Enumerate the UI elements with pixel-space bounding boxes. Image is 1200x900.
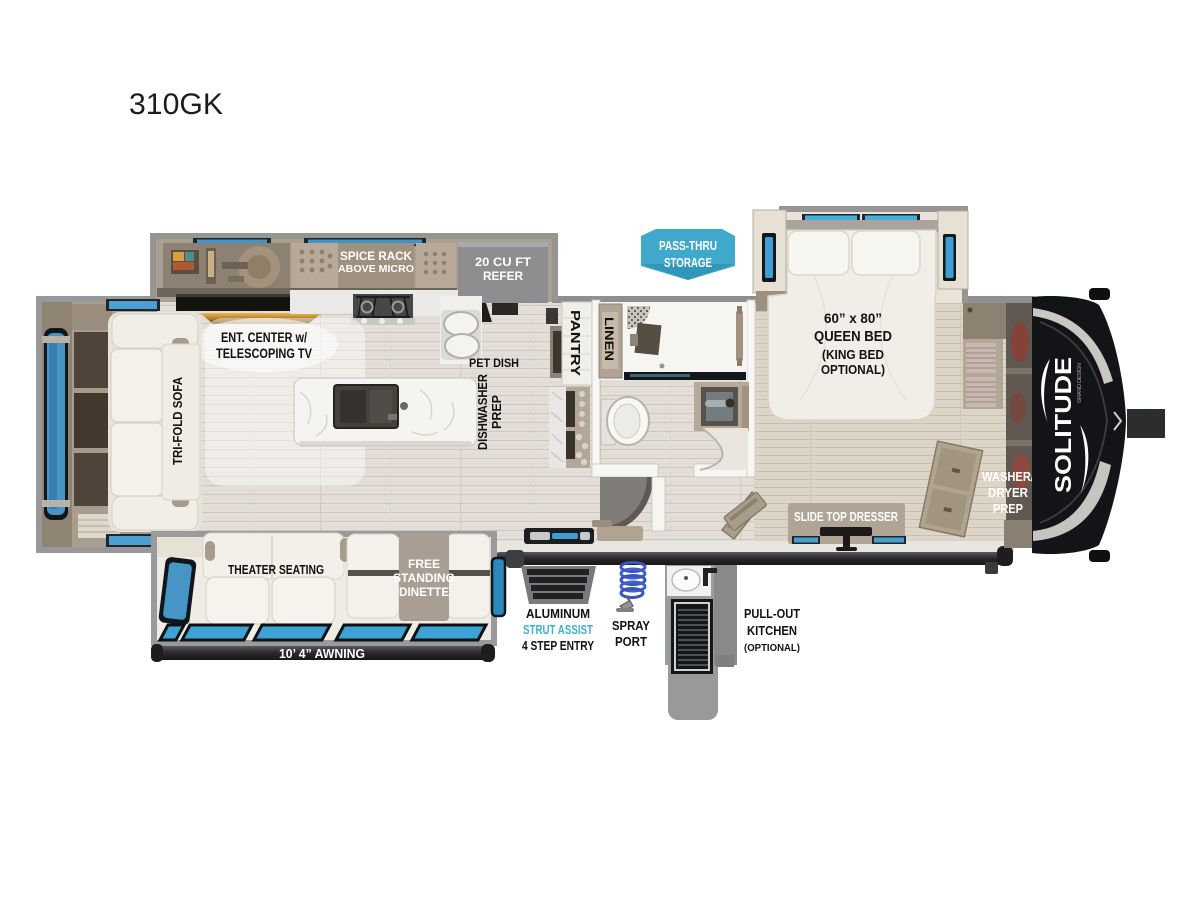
svg-text:310GK: 310GK [129,88,223,121]
svg-text:WASHER/: WASHER/ [982,469,1034,484]
svg-text:SOLITUDE: SOLITUDE [1050,357,1076,493]
svg-text:10’ 4” AWNING: 10’ 4” AWNING [279,646,365,661]
svg-text:ENT. CENTER w/: ENT. CENTER w/ [221,330,307,345]
svg-text:(KING BED: (KING BED [822,348,884,362]
svg-text:QUEEN BED: QUEEN BED [814,329,892,345]
svg-text:20 CU FT: 20 CU FT [475,255,532,269]
svg-text:PET DISH: PET DISH [469,356,519,370]
svg-text:SLIDE TOP DRESSER: SLIDE TOP DRESSER [794,510,898,524]
svg-text:TRI-FOLD SOFA: TRI-FOLD SOFA [171,377,185,465]
svg-text:PANTRY: PANTRY [568,310,583,376]
svg-text:DINETTE: DINETTE [399,587,449,599]
svg-text:SPICE RACK: SPICE RACK [340,251,413,263]
svg-text:THEATER SEATING: THEATER SEATING [228,563,324,577]
svg-text:STRUT ASSIST: STRUT ASSIST [523,622,593,637]
svg-text:REFER: REFER [483,269,523,283]
svg-text:GRAND DESIGN: GRAND DESIGN [1077,363,1083,403]
svg-text:OPTIONAL): OPTIONAL) [821,363,885,377]
svg-text:DRYER: DRYER [988,485,1029,500]
svg-text:ALUMINUM: ALUMINUM [526,606,590,621]
svg-text:(OPTIONAL): (OPTIONAL) [744,642,800,654]
svg-text:PREP: PREP [490,395,504,429]
svg-text:PULL-OUT: PULL-OUT [744,606,800,621]
svg-text:DISHWASHER: DISHWASHER [476,374,490,450]
svg-text:PREP: PREP [993,501,1023,516]
svg-text:60” x 80”: 60” x 80” [824,311,882,326]
svg-text:LINEN: LINEN [602,317,614,361]
svg-text:STANDING: STANDING [393,573,455,585]
svg-text:ABOVE MICRO: ABOVE MICRO [338,263,414,275]
svg-text:TELESCOPING TV: TELESCOPING TV [216,346,312,361]
svg-text:PASS-THRU: PASS-THRU [659,239,717,253]
svg-text:PORT: PORT [615,634,647,649]
svg-text:4 STEP ENTRY: 4 STEP ENTRY [522,638,594,653]
svg-text:SPRAY: SPRAY [612,618,650,633]
svg-text:FREE: FREE [408,559,440,571]
svg-text:STORAGE: STORAGE [664,256,712,270]
svg-text:KITCHEN: KITCHEN [747,623,797,638]
